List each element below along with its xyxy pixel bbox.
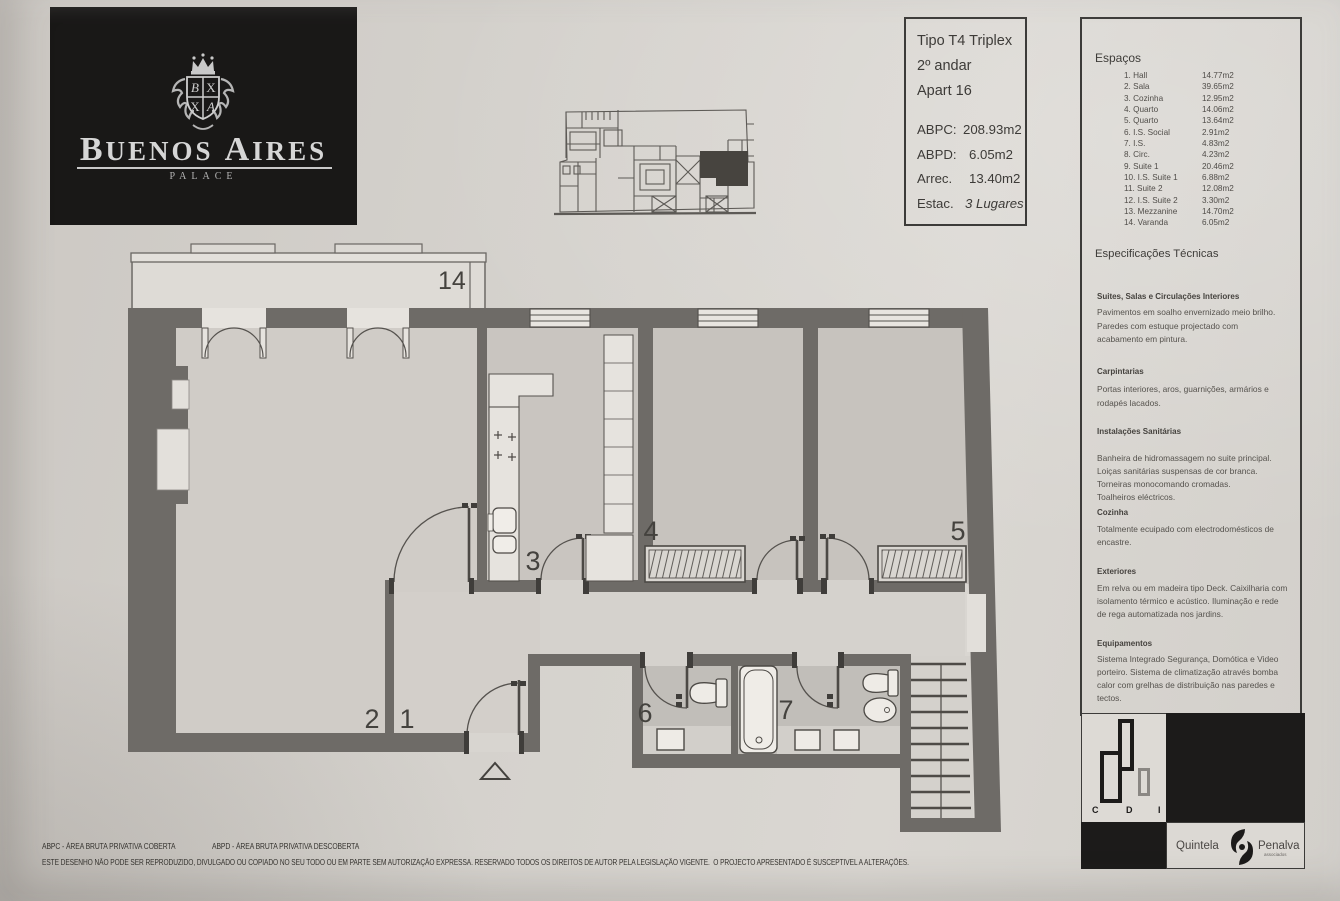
svg-text:2: 2 (364, 704, 379, 734)
svg-text:6: 6 (637, 698, 652, 728)
svg-text:5: 5 (950, 516, 965, 546)
svg-text:1: 1 (399, 704, 414, 734)
svg-text:14: 14 (438, 267, 466, 295)
svg-text:7: 7 (778, 695, 793, 725)
svg-text:4: 4 (643, 516, 658, 546)
svg-text:3: 3 (525, 546, 540, 576)
